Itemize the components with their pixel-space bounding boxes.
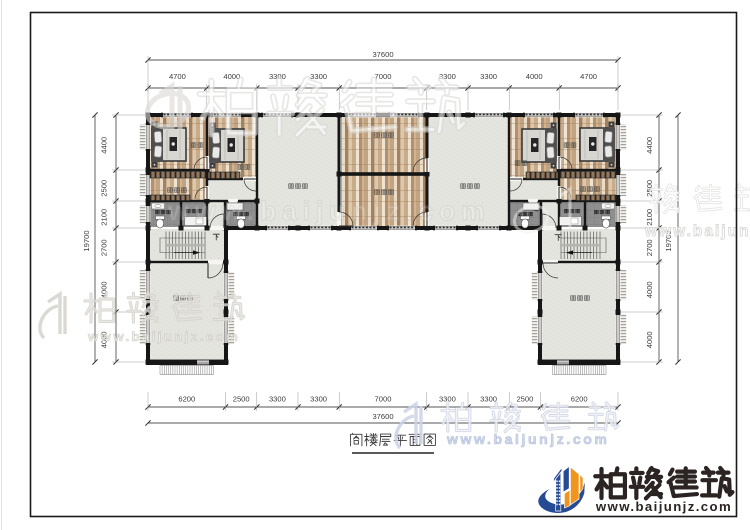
svg-text:3300: 3300 [480, 72, 497, 81]
svg-text:4000: 4000 [526, 72, 543, 81]
svg-text:4000: 4000 [645, 281, 654, 298]
svg-text:3300: 3300 [480, 395, 497, 404]
svg-text:2100: 2100 [100, 209, 109, 226]
svg-text:2500: 2500 [516, 395, 533, 404]
svg-text:6200: 6200 [178, 395, 195, 404]
svg-text:4400: 4400 [100, 137, 109, 154]
svg-text:www.baijunjz.com: www.baijunjz.com [167, 196, 491, 226]
svg-text:www.baijunjz.com: www.baijunjz.com [595, 499, 732, 514]
svg-text:7000: 7000 [375, 395, 392, 404]
svg-text:www.baijunjz.com: www.baijunjz.com [446, 431, 609, 447]
svg-text:2500: 2500 [233, 395, 250, 404]
svg-text:2700: 2700 [100, 239, 109, 256]
svg-text:4000: 4000 [645, 331, 654, 348]
svg-text:3300: 3300 [310, 395, 327, 404]
svg-text:37600: 37600 [372, 412, 393, 421]
svg-text:www.baijunjz.com: www.baijunjz.com [644, 223, 750, 240]
svg-text:37600: 37600 [372, 50, 393, 59]
svg-text:3300: 3300 [269, 395, 286, 404]
svg-text:19700: 19700 [82, 230, 91, 251]
svg-text:3300: 3300 [439, 395, 456, 404]
svg-text:6200: 6200 [571, 395, 588, 404]
svg-text:2500: 2500 [100, 180, 109, 197]
svg-text:www.baijunjz.com: www.baijunjz.com [87, 329, 240, 344]
svg-text:4400: 4400 [645, 137, 654, 154]
svg-text:4700: 4700 [580, 72, 597, 81]
svg-text:2700: 2700 [645, 239, 654, 256]
svg-text:7000: 7000 [375, 72, 392, 81]
svg-text:4700: 4700 [169, 72, 186, 81]
